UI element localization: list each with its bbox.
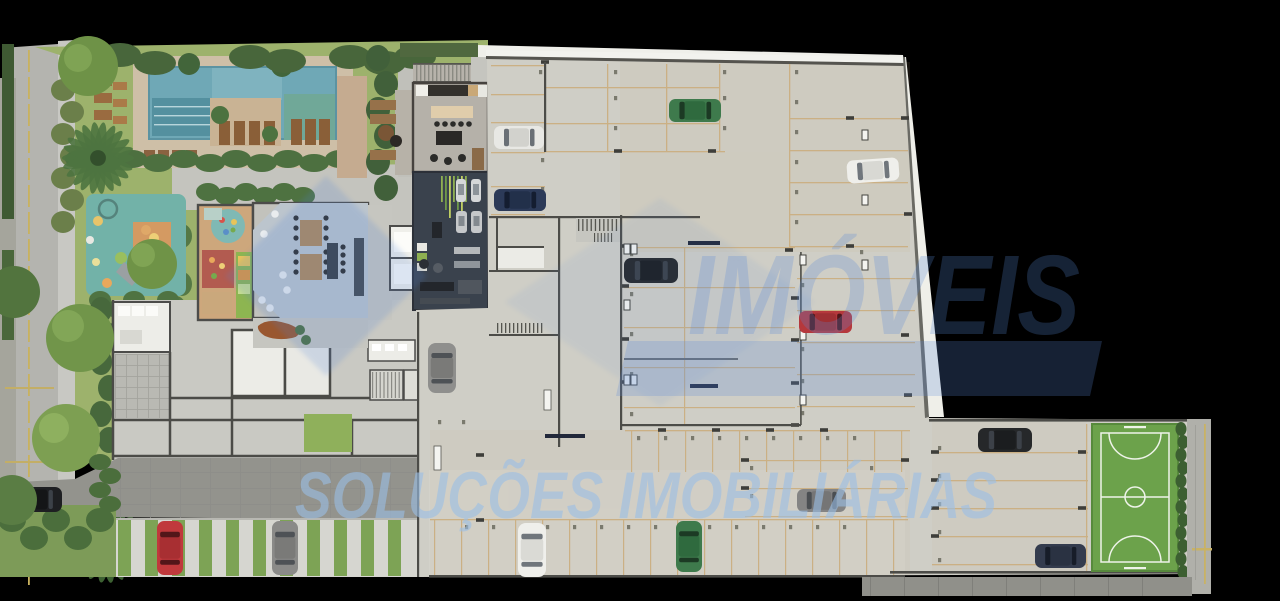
svg-text:IMÓVEIS: IMÓVEIS: [688, 232, 1080, 358]
svg-text:SOLUÇÕES IMOBILIÁRIAS: SOLUÇÕES IMOBILIÁRIAS: [295, 458, 997, 532]
